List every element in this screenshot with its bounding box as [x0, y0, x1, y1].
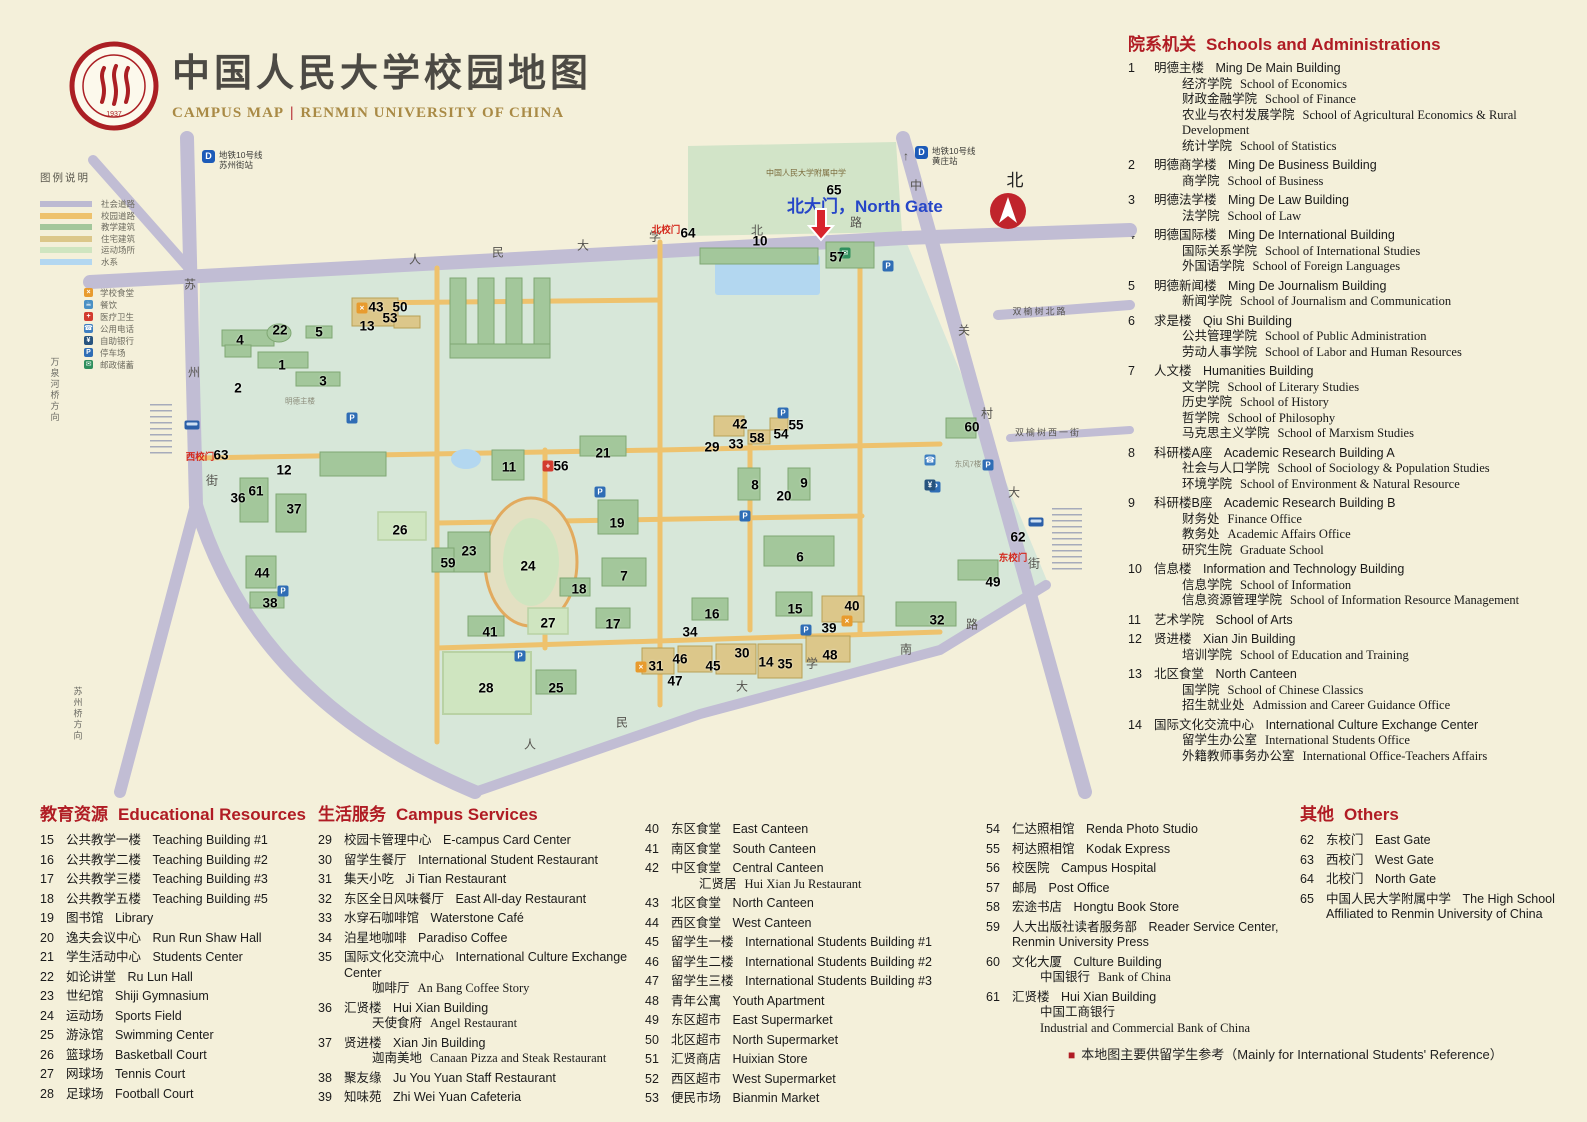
legend-swatch [40, 259, 92, 265]
map-legend: 图例说明 社会道路 校园道路 教学建筑 住宅建筑 [40, 170, 190, 371]
legend-row: 社会道路 [40, 199, 190, 210]
legend-icon-label: 邮政储蓄 [100, 359, 134, 371]
legend-icon-label: 公用电话 [100, 323, 134, 335]
legend-swatch [40, 224, 92, 230]
compass: 北 [988, 166, 1028, 236]
legend-icon: + [84, 312, 93, 321]
legend-swatch [40, 201, 92, 207]
compass-arrow-icon [988, 191, 1028, 231]
legend-swatch [40, 213, 92, 219]
legend-icon: ✉ [84, 360, 93, 369]
legend-label: 住宅建筑 [101, 233, 135, 245]
legend-icon: ¥ [84, 336, 93, 345]
legend-icon-row: ☎ 公用电话 [84, 323, 190, 335]
legend-area-swatches: 社会道路 校园道路 教学建筑 住宅建筑 运动场所 [40, 199, 190, 267]
legend-swatch [40, 247, 92, 253]
legend-icon-row: P 停车场 [84, 347, 190, 359]
compass-north-label: 北 [1002, 166, 1028, 191]
legend-label: 运动场所 [101, 244, 135, 256]
legend-label: 水系 [101, 256, 118, 268]
legend-icon-label: 医疗卫生 [100, 311, 134, 323]
north-gate-arrow-icon [806, 206, 836, 242]
legend-icon: ☎ [84, 324, 93, 333]
legend-row: 校园道路 [40, 211, 190, 222]
legend-icon-row: ¥ 自助银行 [84, 335, 190, 347]
legend-label: 校园道路 [101, 210, 135, 222]
legend-row: 运动场所 [40, 245, 190, 256]
legend-row: 教学建筑 [40, 222, 190, 233]
legend-icon-row: + 医疗卫生 [84, 311, 190, 323]
legend-swatch [40, 236, 92, 242]
legend-row: 住宅建筑 [40, 234, 190, 245]
legend-label: 教学建筑 [101, 221, 135, 233]
legend-icon-label: 停车场 [100, 347, 126, 359]
legend-icon-row: ✉ 邮政储蓄 [84, 359, 190, 371]
campus-map-base [0, 0, 1587, 1122]
legend-icon-label: 学校食堂 [100, 287, 134, 299]
legend-icon: P [84, 348, 93, 357]
legend-label: 社会道路 [101, 198, 135, 210]
legend-icon-label: 餐饮 [100, 299, 117, 311]
legend-icon-row: × 学校食堂 [84, 287, 190, 299]
legend-row: 水系 [40, 257, 190, 268]
legend-icon-list: × 学校食堂 ☕ 餐饮 + 医疗卫生 ☎ 公用电话 ¥ 自助银行 [84, 287, 190, 371]
legend-icon-row: ☕ 餐饮 [84, 299, 190, 311]
legend-title: 图例说明 [40, 170, 190, 185]
legend-icon-label: 自助银行 [100, 335, 134, 347]
legend-icon: × [84, 288, 93, 297]
legend-icon: ☕ [84, 300, 93, 309]
